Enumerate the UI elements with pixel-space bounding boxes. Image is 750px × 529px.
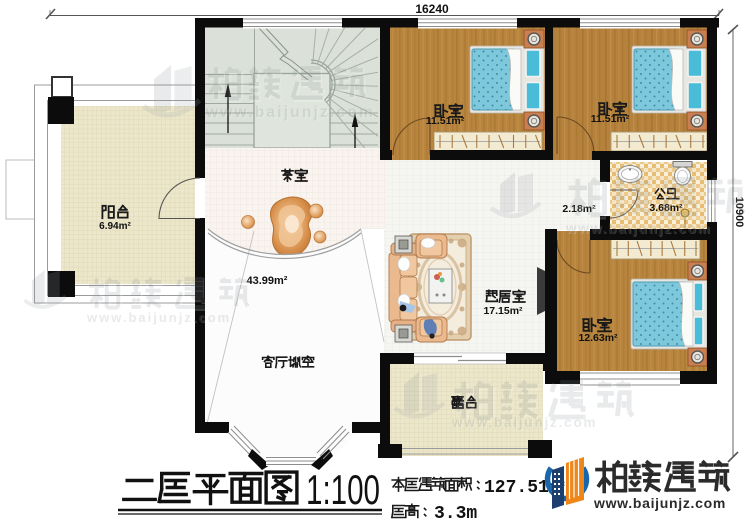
svg-text:11.51m²: 11.51m² (426, 115, 465, 127)
svg-text:17.15m²: 17.15m² (483, 305, 523, 317)
svg-text:www.baijunjz.com: www.baijunjz.com (86, 310, 231, 325)
svg-text:127.51: 127.51 (484, 478, 549, 498)
svg-text:www.baijunjz.com: www.baijunjz.com (205, 104, 375, 121)
svg-text:11.51m²: 11.51m² (591, 113, 630, 125)
svg-text:www.baijunjz.com: www.baijunjz.com (565, 221, 711, 236)
svg-text:12.63m²: 12.63m² (578, 332, 618, 344)
svg-text:www.baijunjz.com: www.baijunjz.com (451, 415, 597, 430)
svg-text:16240: 16240 (415, 2, 449, 16)
svg-text:3.3m: 3.3m (434, 504, 477, 524)
svg-text:6.94m²: 6.94m² (99, 221, 131, 232)
svg-text:43.99m²: 43.99m² (247, 275, 288, 287)
svg-text:www.baijunjz.com: www.baijunjz.com (593, 495, 726, 511)
svg-text:1:100: 1:100 (306, 466, 380, 513)
